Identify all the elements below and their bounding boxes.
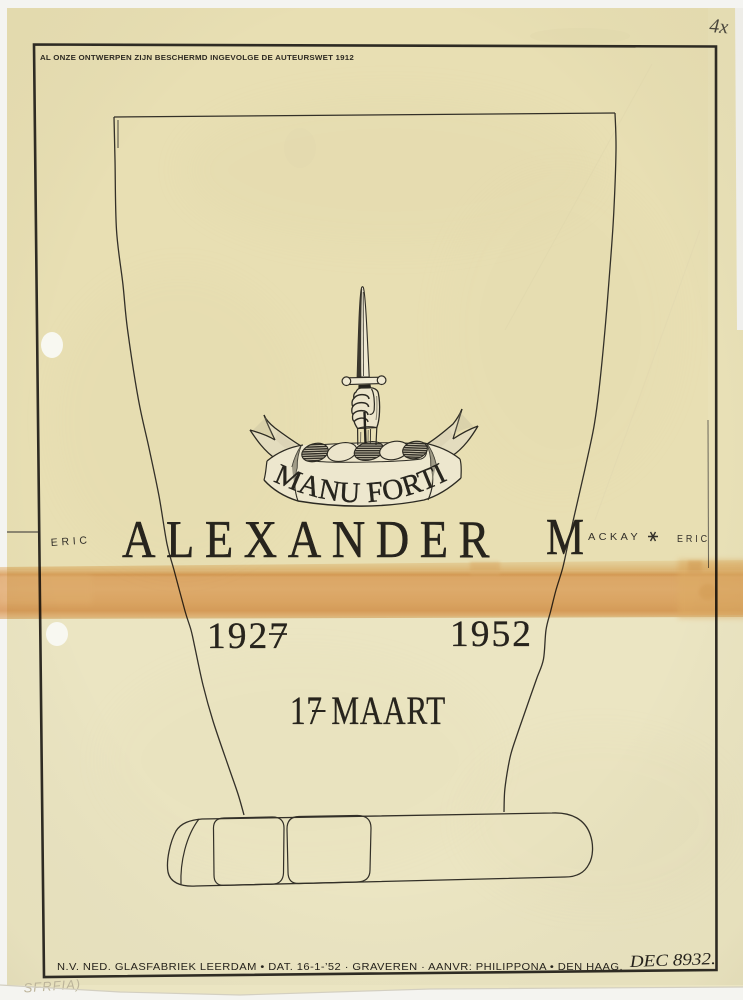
svg-text:1927: 1927 [207, 616, 290, 657]
svg-text:ALEXANDER: ALEXANDER [122, 511, 500, 569]
svg-text:N.V. NED. GLASFABRIEK LEERDAM: N.V. NED. GLASFABRIEK LEERDAM • DAT. 16-… [57, 962, 623, 973]
svg-text:AL ONZE ONTWERPEN ZIJN BESCHER: AL ONZE ONTWERPEN ZIJN BESCHERMD INGEVOL… [40, 53, 354, 62]
svg-text:DEC 8932.: DEC 8932. [628, 949, 716, 971]
svg-text:M: M [546, 509, 584, 566]
svg-text:ERIC: ERIC [677, 533, 710, 545]
svg-text:4x: 4x [709, 15, 729, 38]
svg-text:1952: 1952 [450, 614, 533, 655]
svg-text:ACKAY: ACKAY [588, 532, 641, 543]
